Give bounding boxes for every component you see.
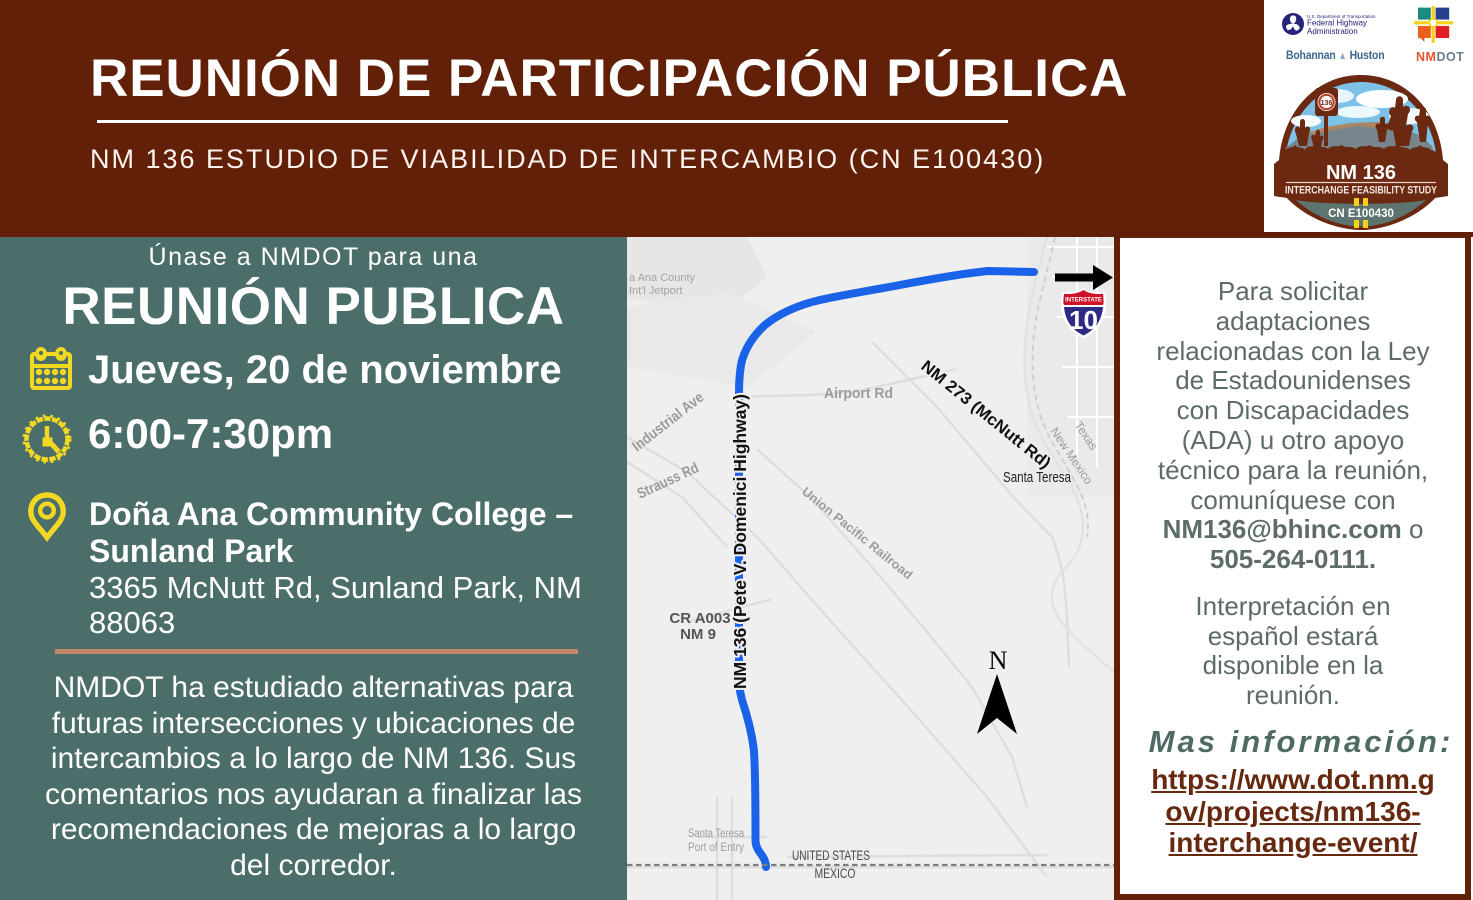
svg-text:Administration: Administration [1307,27,1358,36]
svg-text:CR A003: CR A003 [669,610,730,627]
svg-text:136: 136 [1321,100,1333,107]
svg-text:INTERSTATE: INTERSTATE [1065,298,1102,304]
svg-text:INTERCHANGE FEASIBILITY STUDY: INTERCHANGE FEASIBILITY STUDY [1285,185,1438,197]
svg-text:Santa Teresa: Santa Teresa [688,828,744,840]
svg-text:UNITED STATES: UNITED STATES [792,847,870,863]
svg-text:MEXICO: MEXICO [815,865,856,881]
svg-text:NMDOT: NMDOT [1416,50,1464,63]
svg-text:CN E100430: CN E100430 [1328,208,1394,220]
svg-text:Int'l Jetport: Int'l Jetport [629,285,682,297]
svg-text:Industrial Ave: Industrial Ave [629,389,707,455]
svg-text:10: 10 [1069,305,1098,335]
svg-text:NM 9: NM 9 [680,626,716,643]
svg-text:N: N [989,646,1008,675]
svg-text:Airport Rd: Airport Rd [824,385,893,402]
svg-text:a Ana County: a Ana County [629,272,696,284]
svg-text:Port of Entry: Port of Entry [688,842,744,854]
svg-text:NM 136 (Pete V. Domenici Highw: NM 136 (Pete V. Domenici Highway) [730,394,750,689]
svg-text:Union Pacific Railroad: Union Pacific Railroad [799,484,915,582]
svg-text:NM 136: NM 136 [1326,162,1396,184]
svg-text:Santa Teresa: Santa Teresa [1003,470,1072,486]
svg-text:Strauss Rd: Strauss Rd [635,459,702,502]
